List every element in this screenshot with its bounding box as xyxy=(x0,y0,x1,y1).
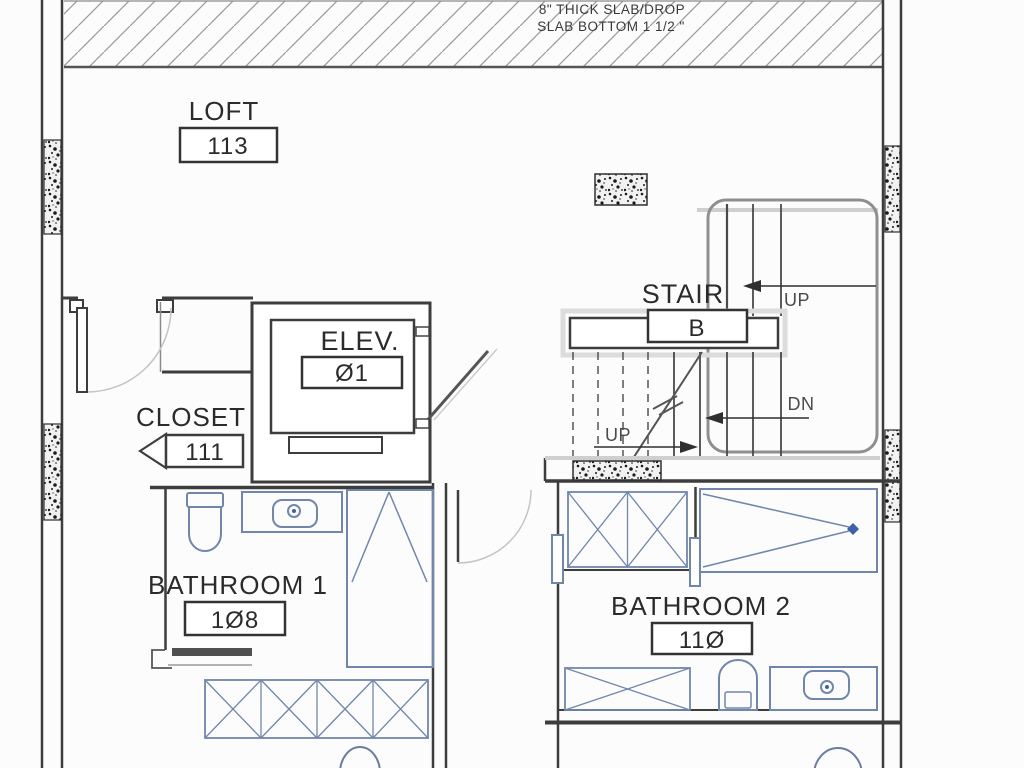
room-label-closet: CLOSET xyxy=(136,402,246,432)
dn-label: DN xyxy=(788,394,815,414)
room-label-stair: STAIR xyxy=(642,279,725,309)
slab-note-line1: 8" THICK SLAB/DROP xyxy=(539,2,685,17)
room-number-loft: 113 xyxy=(207,133,248,160)
door-jamb xyxy=(552,535,563,583)
door-leaf xyxy=(77,308,87,392)
floor-plan: 8" THICK SLAB/DROP SLAB BOTTOM 1 1/2 " L… xyxy=(0,0,1024,768)
room-label-loft: LOFT xyxy=(189,96,259,126)
slab-hatch-band: 8" THICK SLAB/DROP SLAB BOTTOM 1 1/2 " xyxy=(64,1,883,67)
floor-plan-svg: 8" THICK SLAB/DROP SLAB BOTTOM 1 1/2 " L… xyxy=(0,0,1024,768)
room-label-bathroom1: BATHROOM 1 xyxy=(148,570,328,600)
slab-note-line2: SLAB BOTTOM 1 1/2 " xyxy=(537,19,685,34)
room-number-bathroom2: 11Ø xyxy=(679,627,726,654)
room-number-bathroom1: 1Ø8 xyxy=(211,607,259,634)
room-number-stair: B xyxy=(688,315,705,342)
up-bottom-label: UP xyxy=(605,425,631,445)
door-jamb xyxy=(690,538,700,586)
room-number-elevator: Ø1 xyxy=(335,360,369,387)
up-top-label: UP xyxy=(784,290,810,310)
room-label-elevator: ELEV. xyxy=(320,326,399,356)
room-number-closet: 111 xyxy=(185,439,224,466)
drawing-background xyxy=(0,0,1024,768)
room-label-bathroom2: BATHROOM 2 xyxy=(611,591,791,621)
